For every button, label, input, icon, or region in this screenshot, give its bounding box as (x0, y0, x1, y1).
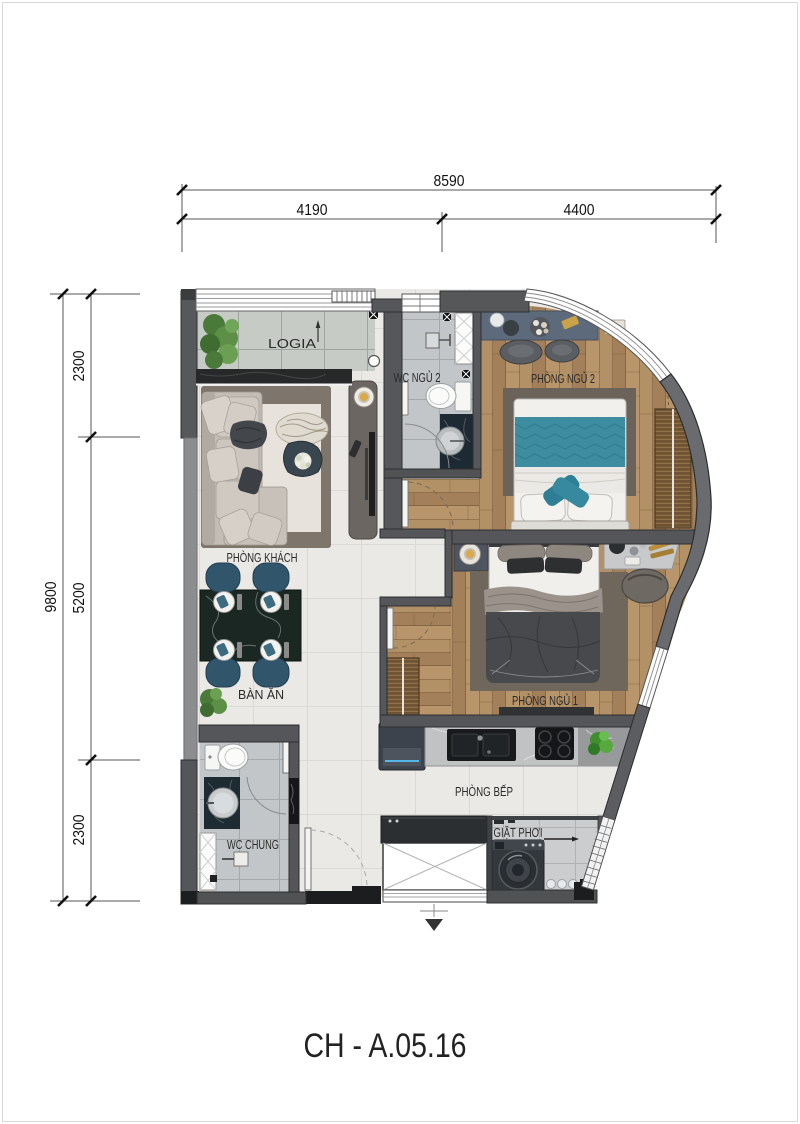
svg-text:2300: 2300 (71, 350, 88, 381)
svg-text:PHÒNG KHÁCH: PHÒNG KHÁCH (227, 550, 298, 565)
svg-text:WC NGỦ 2: WC NGỦ 2 (394, 370, 441, 385)
svg-text:WC CHUNG: WC CHUNG (227, 838, 279, 852)
svg-text:4400: 4400 (564, 202, 595, 219)
svg-text:8590: 8590 (434, 173, 465, 190)
svg-text:CH - A.05.16: CH - A.05.16 (304, 1027, 467, 1065)
svg-text:2300: 2300 (71, 814, 88, 845)
svg-text:LOGIA: LOGIA (268, 337, 317, 351)
svg-text:PHÒNG NGỦ 2: PHÒNG NGỦ 2 (531, 371, 595, 386)
svg-text:GIẶT PHƠI: GIẶT PHƠI (494, 825, 543, 840)
svg-text:PHÒNG BẾP: PHÒNG BẾP (455, 784, 513, 799)
svg-text:PHÒNG NGỦ 1: PHÒNG NGỦ 1 (512, 693, 578, 708)
svg-text:5200: 5200 (71, 582, 88, 613)
svg-text:4190: 4190 (297, 202, 328, 219)
svg-text:9800: 9800 (43, 581, 60, 612)
svg-text:BÀN ĂN: BÀN ĂN (238, 687, 284, 702)
